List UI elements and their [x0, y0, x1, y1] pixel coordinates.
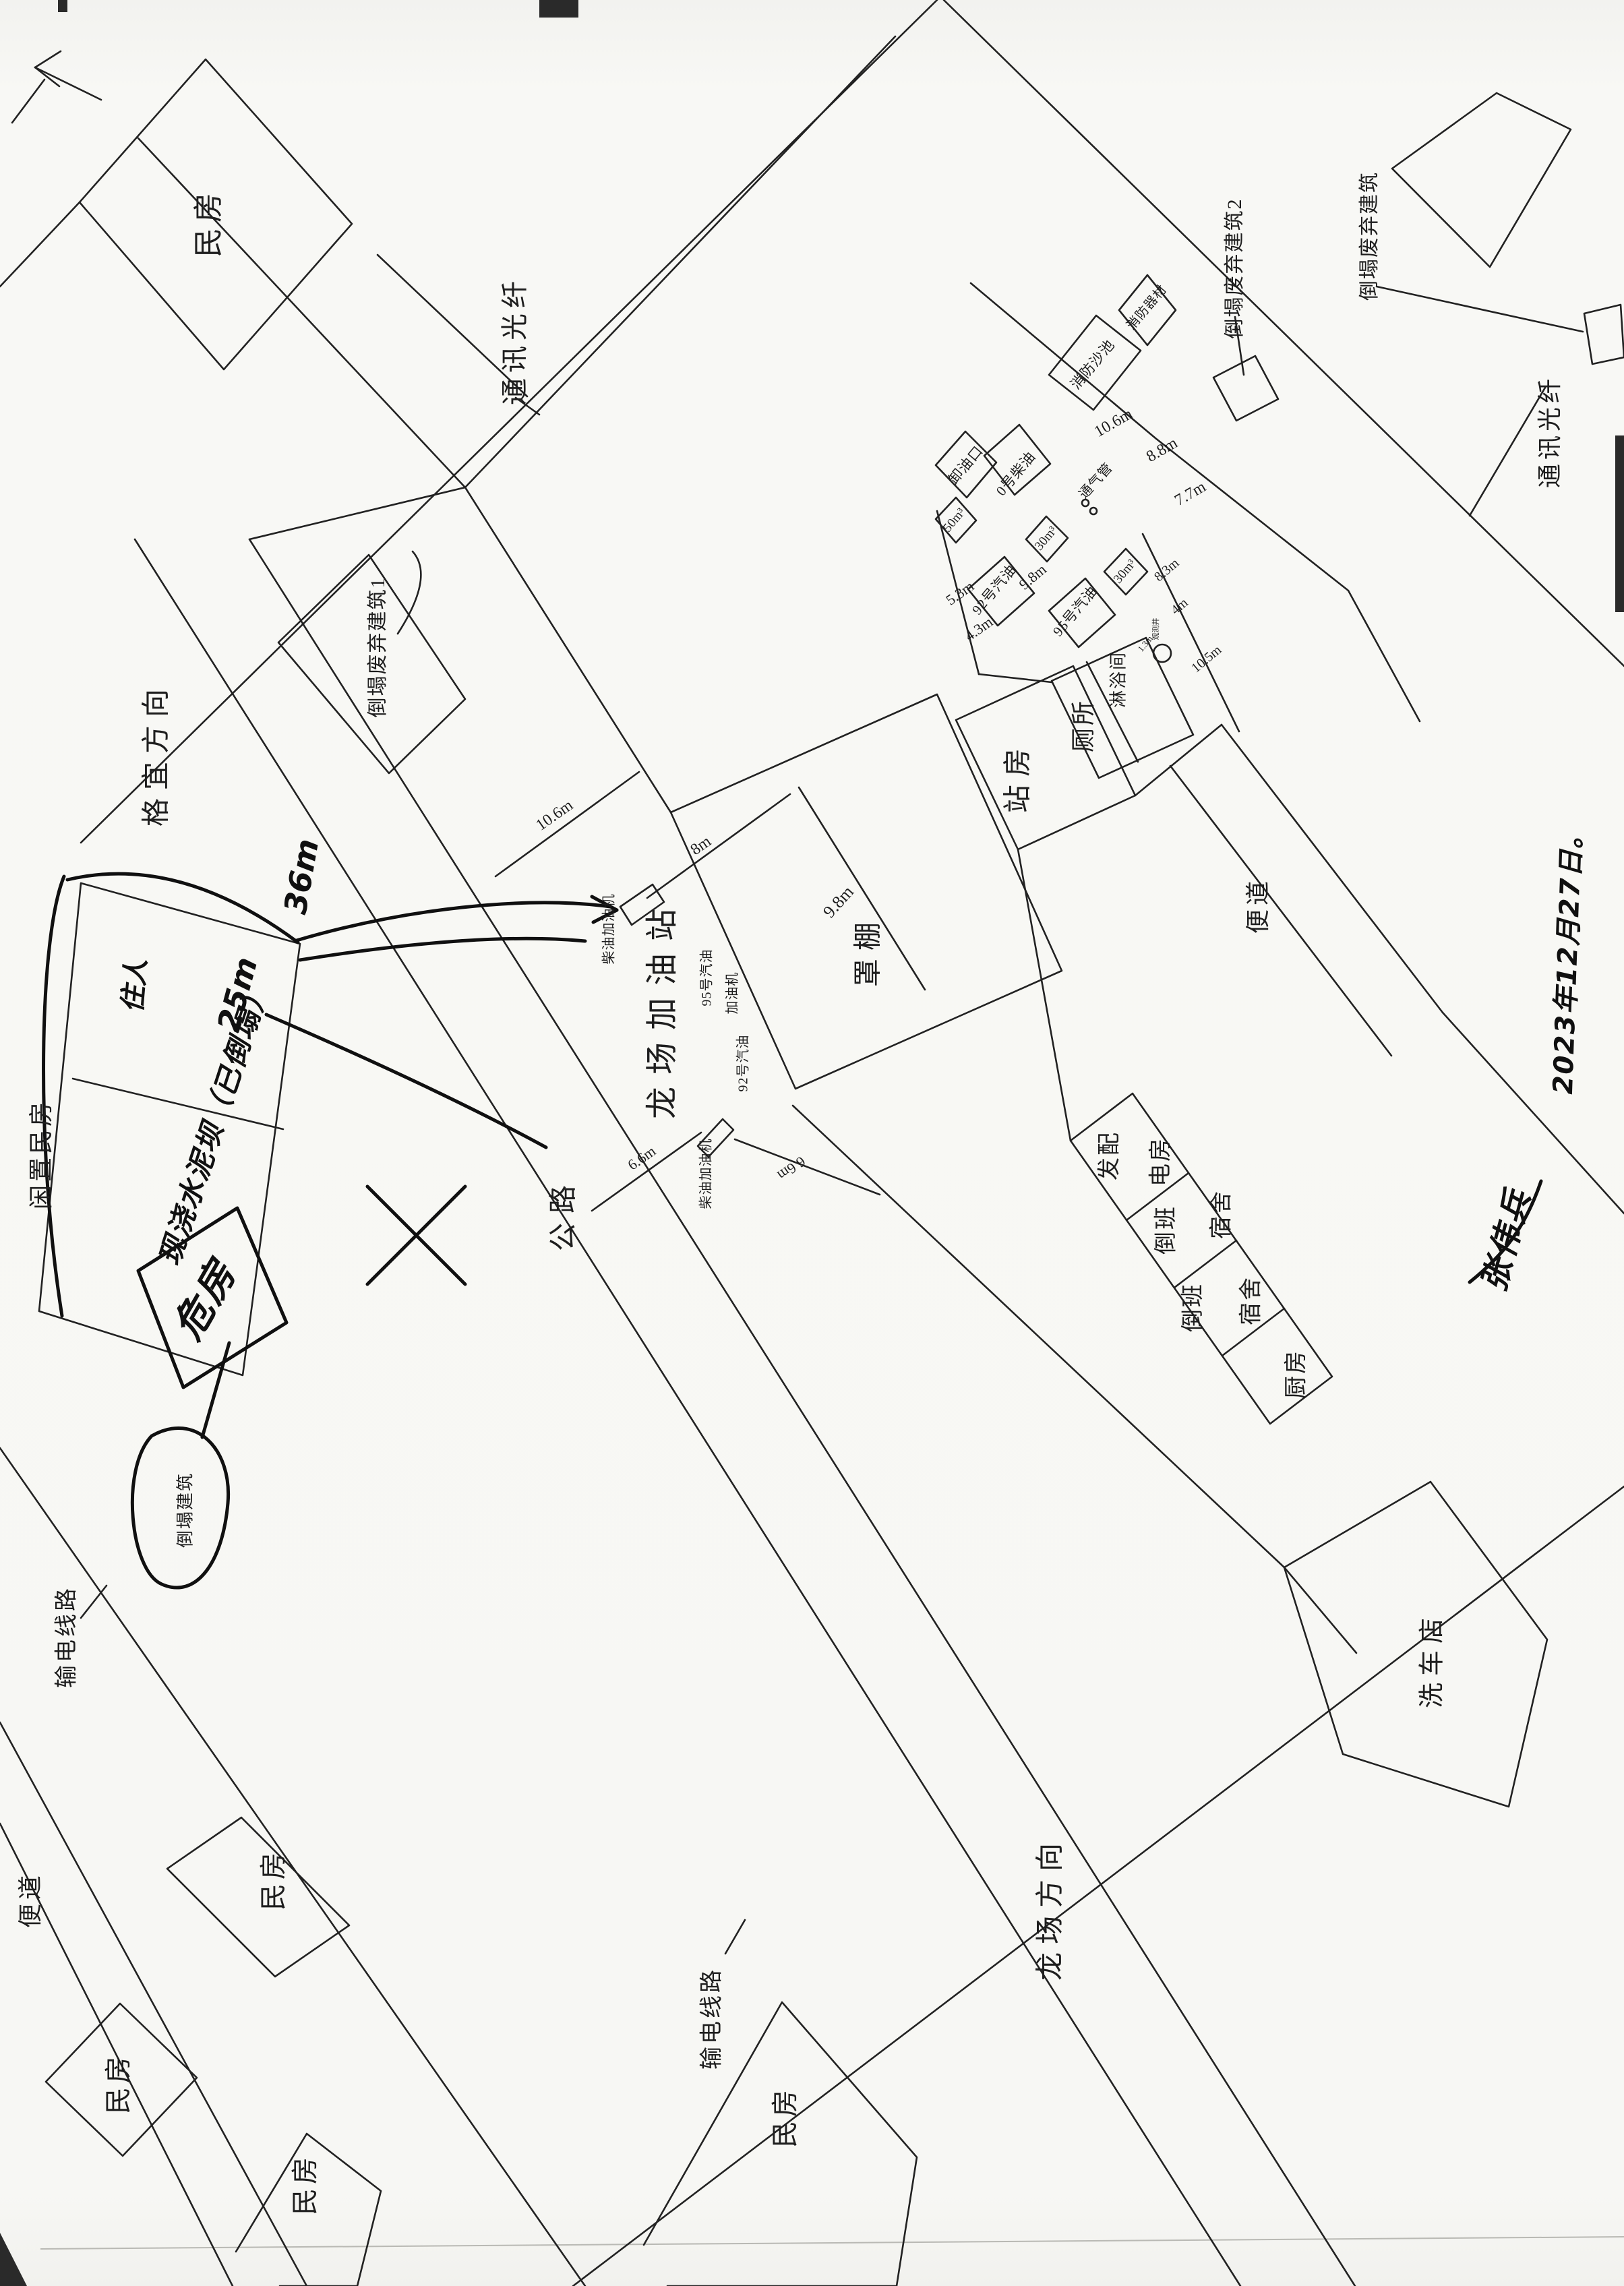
tongxun-top-label: 通讯光纤: [493, 276, 532, 405]
scanned-site-plan: { "colors": { "paper": "#f7f7f4", "ink":…: [0, 0, 1624, 2286]
sushe-2-label: 宿舍: [1232, 1275, 1265, 1325]
guanceijing-label: 观测井: [1150, 618, 1161, 640]
daota-feiqi-2-label: 倒塌废弃建筑2: [1217, 198, 1247, 339]
qiyou-95-pump-label: 95号汽油: [696, 949, 715, 1006]
sushe-1-label: 宿舍: [1203, 1189, 1236, 1239]
minfang-bm-label: 民房: [763, 2086, 802, 2148]
fapei-label: 发配: [1091, 1131, 1124, 1180]
minfang-midleft-label: 民房: [251, 1848, 291, 1911]
biandao-bl-label: 便道: [11, 1871, 46, 1928]
chaiyou-jiayouji-2-label: 柴油加油机: [695, 1139, 715, 1209]
tongxun-right-label: 通讯光纤: [1530, 375, 1565, 488]
gonglu-label: 公路: [541, 1176, 582, 1251]
biandao-right-label: 便道: [1238, 877, 1273, 934]
longchang-fangxiang-label: 龙场方向: [1027, 1835, 1069, 1981]
minfang-bl-1-label: 民房: [96, 2052, 136, 2114]
cesuo-label: 厕所: [1064, 698, 1099, 752]
shudian-bottom-label: 输电线路: [693, 1967, 726, 2070]
chaiyou-jiayouji-1-label: 柴油加油机: [598, 894, 618, 965]
jiayouji-label: 加油机: [721, 972, 741, 1015]
zhanfang-label: 站房: [995, 740, 1036, 813]
geyi-fangxiang-label: 格宜方向: [133, 681, 175, 826]
qiyou-92-pump-label: 92号汽油: [732, 1035, 752, 1092]
minfang-bl-2-label: 民房: [283, 2153, 322, 2215]
daota-jianzhu-label: 倒塌建筑: [172, 1472, 197, 1548]
dianfang-label: 电房: [1142, 1137, 1175, 1186]
hand-zhuren-label: 住人: [111, 957, 154, 1015]
chufang-label: 厨房: [1277, 1349, 1311, 1399]
minfang-nw-label: 民房: [184, 187, 227, 258]
zhaopeng-label: 罩棚: [845, 914, 886, 987]
daoban-2-label: 倒班: [1174, 1282, 1207, 1332]
linyujian-label: 淋浴间: [1105, 651, 1130, 708]
shudian-left-label: 输电线路: [48, 1586, 81, 1688]
daoban-1-label: 倒班: [1147, 1205, 1180, 1255]
daota-feiqi-1-label: 倒塌废弃建筑1: [361, 577, 390, 718]
north-arrow-icon: [12, 51, 101, 123]
pen-annotations: [44, 874, 1541, 1588]
longchang-jiayouzhan-label: 龙场加油站: [635, 897, 682, 1119]
site-plan-linework: [0, 0, 1624, 2286]
scan-artifacts: [0, 0, 1624, 2286]
xichedian-label: 洗车店: [1411, 1611, 1448, 1708]
xianzhi-minfang-label: 闲置民房: [22, 1099, 57, 1209]
daota-feiqi-r-label: 倒塌废弃建筑: [1352, 171, 1382, 301]
